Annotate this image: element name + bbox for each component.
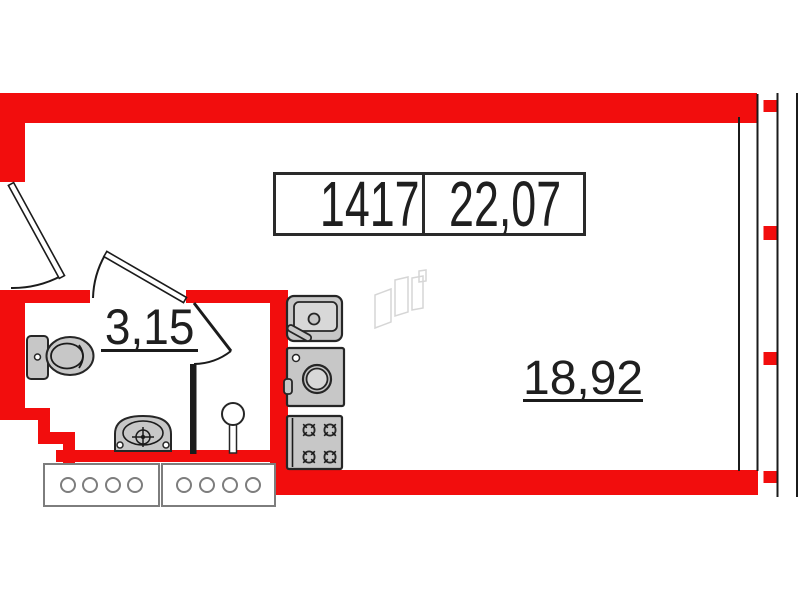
floor-plan-canvas: 1417 22,07 3,15 18,92 — [0, 0, 800, 600]
facade-pier — [764, 352, 777, 365]
unit-total-area-cell: 22,07 — [425, 175, 585, 233]
facade-pier — [764, 226, 777, 240]
door-leaf — [194, 303, 231, 351]
unit-number-cell: 1417 — [276, 175, 425, 233]
radiator-left-icon — [44, 464, 159, 506]
wall-left-upper — [0, 93, 25, 182]
washing-machine-icon — [284, 348, 344, 406]
kitchen-sink-icon — [286, 296, 342, 342]
bathroom-partition-wall — [190, 364, 197, 454]
unit-total-area: 22,07 — [449, 175, 561, 233]
door-swing-arc — [11, 276, 61, 288]
wall-bathroom-top-left — [0, 290, 90, 303]
facade-glazing — [739, 93, 797, 497]
wall-top — [0, 93, 757, 123]
wall-mainroom-bottom — [270, 470, 758, 495]
unit-info-box: 1417 22,07 — [273, 172, 586, 236]
bathroom-door — [93, 251, 187, 302]
toilet-icon — [27, 336, 94, 379]
door-swing-arc — [93, 255, 105, 298]
developer-watermark — [375, 270, 426, 328]
shaft-door — [194, 303, 231, 364]
door-swing-arc — [194, 351, 231, 364]
wall-left-lower — [0, 290, 25, 420]
unit-number: 1417 — [320, 175, 422, 233]
entrance-door — [8, 183, 64, 288]
door-leaf — [8, 183, 64, 279]
facade-pier — [764, 471, 777, 483]
bathroom-area-label: 3,15 — [101, 305, 198, 352]
door-leaf — [104, 251, 187, 302]
riser-pipe-icon — [222, 403, 244, 453]
main-room-area-label: 18,92 — [523, 358, 643, 402]
radiator-right-icon — [162, 464, 275, 506]
stove-icon — [287, 416, 342, 469]
facade-pier — [764, 100, 777, 112]
wash-basin-icon — [115, 416, 171, 451]
